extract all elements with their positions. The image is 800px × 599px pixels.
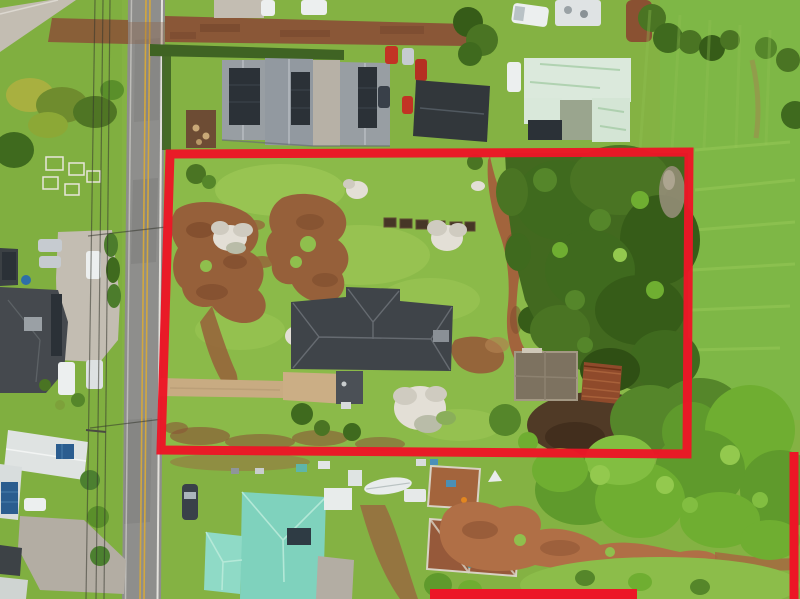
aerial-property-photo <box>0 0 800 599</box>
solar-panels-blue <box>56 444 74 459</box>
flatbed-truck <box>555 0 601 26</box>
courtyard <box>560 100 592 140</box>
van <box>58 362 75 395</box>
solar-array <box>291 72 310 125</box>
car-red <box>402 96 413 114</box>
car <box>86 251 101 279</box>
van <box>86 360 103 389</box>
car-silver <box>402 48 414 65</box>
car-red <box>385 46 398 64</box>
small-structure <box>348 470 362 486</box>
car-white <box>301 0 327 15</box>
orange-item <box>461 497 467 503</box>
blue-barrel <box>21 275 31 285</box>
car <box>24 498 46 511</box>
attached-shed <box>336 371 363 404</box>
solar-array <box>528 120 562 140</box>
solar-panels-blue <box>1 482 18 514</box>
skylight <box>24 317 42 331</box>
house-roof-dark <box>0 545 22 576</box>
white-roof-section <box>324 488 352 510</box>
car <box>39 256 61 268</box>
house-roof-light <box>0 577 28 599</box>
solar-array <box>51 294 62 356</box>
solar-array <box>287 528 311 545</box>
skylight <box>433 330 449 342</box>
solar-array <box>2 252 16 280</box>
blue-tarp <box>446 480 456 487</box>
concrete-pad-south <box>316 556 354 599</box>
truck-white <box>507 62 521 92</box>
hedge-vertical <box>162 48 171 150</box>
suv-dark <box>182 484 198 520</box>
house-top-gray <box>222 58 390 146</box>
car-red <box>415 59 427 81</box>
car-white <box>261 0 275 16</box>
paved-road <box>122 0 165 599</box>
van-dark <box>378 86 390 108</box>
trailer-white <box>404 489 426 502</box>
solar-array <box>229 68 260 125</box>
solar-array <box>358 67 377 128</box>
concrete-pad <box>214 0 264 18</box>
car <box>38 239 62 252</box>
